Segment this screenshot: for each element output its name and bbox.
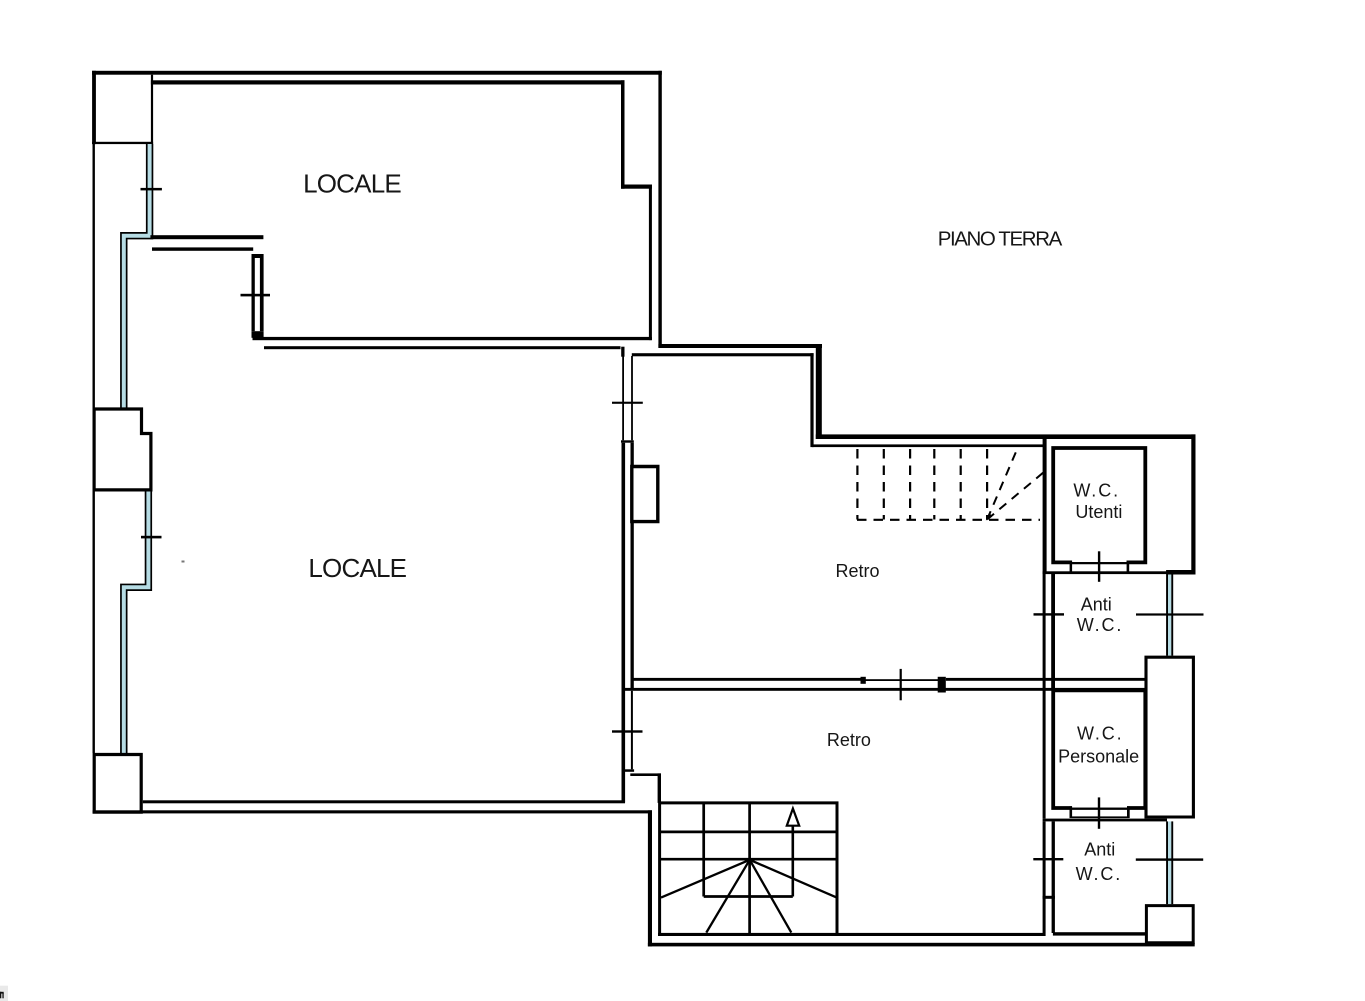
svg-text:Retro: Retro (827, 730, 871, 750)
svg-text:LOCALE: LOCALE (308, 553, 406, 583)
svg-text:W.C.: W.C. (1077, 724, 1124, 744)
svg-text:W.C.: W.C. (1077, 615, 1124, 635)
svg-text:PIANO TERRA: PIANO TERRA (938, 228, 1063, 251)
svg-text:W.C.: W.C. (1073, 480, 1120, 500)
svg-text:Personale: Personale (1058, 747, 1139, 767)
svg-text:W.C.: W.C. (1076, 864, 1123, 884)
svg-text:LOCALE: LOCALE (303, 169, 401, 199)
svg-text:Anti: Anti (1084, 840, 1115, 860)
svg-text:Utenti: Utenti (1075, 502, 1122, 522)
svg-text:Retro: Retro (835, 561, 879, 581)
svg-text:Anti: Anti (1081, 594, 1112, 614)
